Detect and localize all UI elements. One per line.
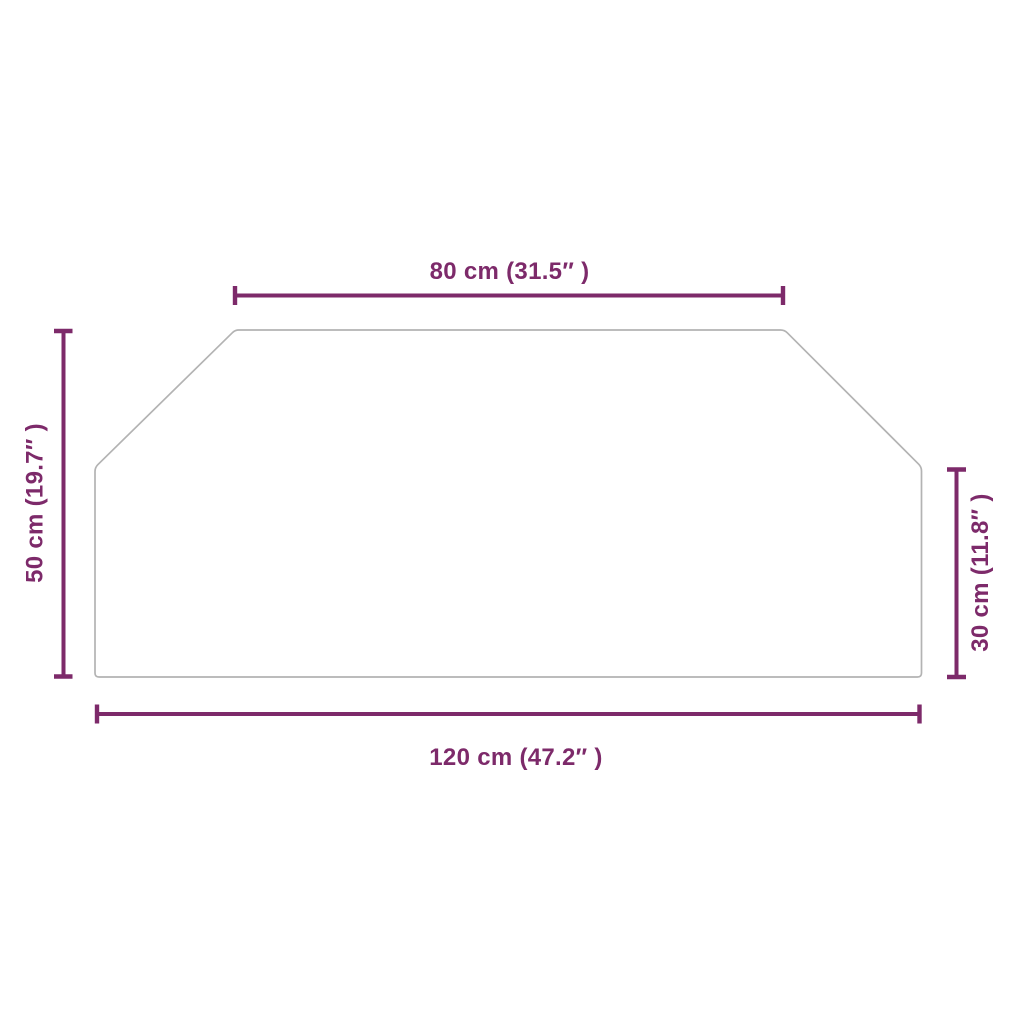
svg-text:50 cm (19.7″ ): 50 cm (19.7″ ) xyxy=(22,423,49,583)
svg-text:120 cm (47.2″ ): 120 cm (47.2″ ) xyxy=(429,744,602,771)
svg-text:80 cm (31.5″ ): 80 cm (31.5″ ) xyxy=(430,258,590,285)
svg-text:30 cm (11.8″ ): 30 cm (11.8″ ) xyxy=(967,493,994,651)
